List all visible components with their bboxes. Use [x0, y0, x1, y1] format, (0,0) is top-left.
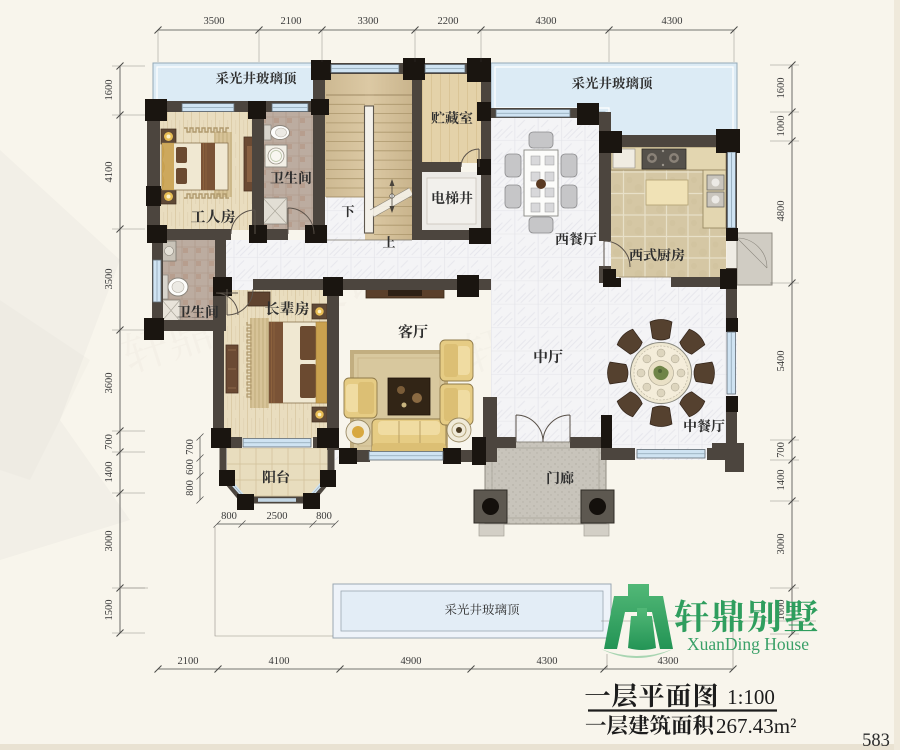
svg-text:700: 700 [776, 442, 787, 458]
svg-text:3300: 3300 [358, 16, 379, 27]
svg-text:2200: 2200 [438, 16, 459, 27]
svg-text:4300: 4300 [537, 656, 558, 667]
svg-text:4100: 4100 [269, 656, 290, 667]
svg-text:4800: 4800 [776, 201, 787, 222]
svg-text:800: 800 [316, 511, 332, 522]
svg-text:2500: 2500 [267, 511, 288, 522]
svg-text:4100: 4100 [104, 162, 115, 183]
svg-text:700: 700 [185, 439, 196, 455]
svg-text:2100: 2100 [281, 16, 302, 27]
svg-text:1400: 1400 [776, 470, 787, 491]
svg-text:1400: 1400 [104, 462, 115, 483]
svg-text:3500: 3500 [104, 269, 115, 290]
svg-text:700: 700 [104, 434, 115, 450]
svg-text:800: 800 [221, 511, 237, 522]
svg-text:1500: 1500 [104, 600, 115, 621]
svg-text:3000: 3000 [776, 534, 787, 555]
svg-text:1600: 1600 [776, 78, 787, 99]
svg-text:1000: 1000 [776, 116, 787, 137]
svg-text:1:100: 1:100 [727, 685, 775, 709]
svg-text:267.43m²: 267.43m² [716, 714, 796, 738]
svg-text:2100: 2100 [178, 656, 199, 667]
svg-text:3600: 3600 [104, 373, 115, 394]
svg-text:583: 583 [862, 731, 890, 750]
svg-text:3000: 3000 [104, 531, 115, 552]
svg-text:4300: 4300 [662, 16, 683, 27]
svg-text:XuanDing House: XuanDing House [687, 634, 809, 654]
svg-text:600: 600 [185, 459, 196, 475]
svg-text:4300: 4300 [658, 656, 679, 667]
svg-text:4900: 4900 [401, 656, 422, 667]
svg-text:4300: 4300 [536, 16, 557, 27]
svg-text:800: 800 [185, 480, 196, 496]
svg-text:1600: 1600 [104, 80, 115, 101]
svg-text:3500: 3500 [204, 16, 225, 27]
svg-text:5400: 5400 [776, 351, 787, 372]
